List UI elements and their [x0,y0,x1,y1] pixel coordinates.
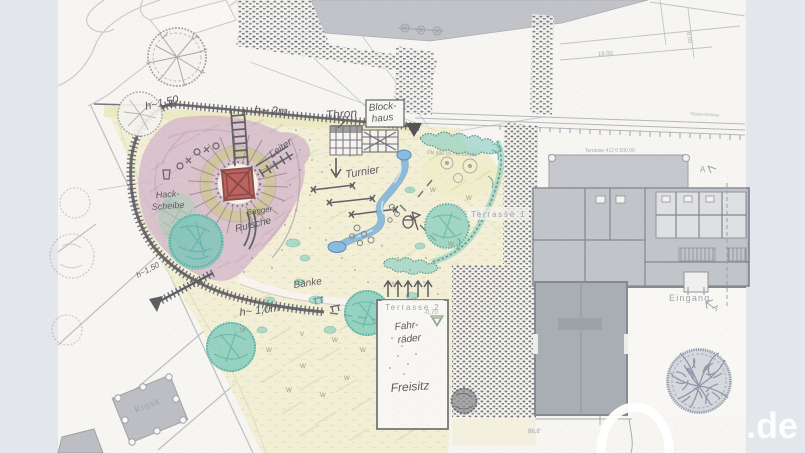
svg-text:ler: ler [666,407,713,449]
svg-text:.de: .de [746,405,798,446]
